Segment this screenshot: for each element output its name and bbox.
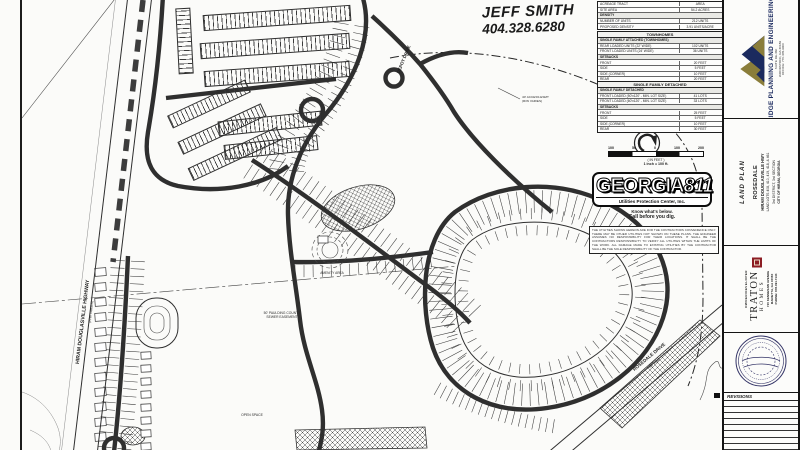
ridge-logo-icon (736, 29, 766, 89)
project-district: 3rd DISTRICT, 3rd SECTION (772, 160, 776, 204)
map-labels: HIRAM DOUGLASVILLE HIGHWAY (R/W VARIES) … (75, 45, 666, 417)
owner-box: OWNER/DEVELOPER TRATON HOMES 720 KENNESA… (724, 245, 798, 333)
highway-median (113, 0, 143, 262)
table-row: FRONT LOADED (50'x120' - MIN. LOT SIZE)4… (598, 93, 722, 99)
engineer-seal-icon (724, 332, 798, 390)
seal-box (724, 332, 798, 393)
georgia811-tagline2: Call before you dig. (592, 214, 712, 220)
scale-tick: 0 (654, 146, 656, 150)
contact-phone: 404.328.6280 (482, 19, 575, 38)
project-name: ROSEDALE (753, 164, 759, 198)
revisions-rows (724, 401, 798, 450)
title-block: RIDGE PLANNING AND ENGINEERING SUITE DE-… (722, 0, 800, 450)
single-family-table: SINGLE FAMILY DETACHED SINGLE FAMILY DET… (597, 81, 723, 133)
depot-drive-road (372, 16, 552, 212)
table-row: FRONT LOADED (60'x120' - MIN. LOT SIZE)3… (598, 98, 722, 104)
access-esmt-label-2: (R/W VARIES) (522, 99, 542, 103)
stormwater-pond (315, 176, 400, 239)
amenity-oval (136, 298, 178, 348)
table-row: REAR30 FEET (598, 126, 722, 132)
cul-de-sac (301, 99, 323, 121)
contact-block: JEFF SMITH 404.328.6280 (481, 1, 575, 37)
existing-pavement-south (295, 427, 427, 450)
townhome-loop-road (147, 0, 288, 189)
revision-row (724, 444, 798, 450)
scale-tick: 100 (674, 146, 680, 150)
revisions-title: REVISIONS (724, 392, 798, 401)
georgia811-subtitle: Utilities Protection Center, Inc. (596, 197, 708, 204)
plan-sheet: HIRAM DOUGLASVILLE HIGHWAY (R/W VARIES) … (0, 0, 800, 450)
table-row: PROPOSED DENSITY3.91 UNITS/ACRE (598, 23, 722, 29)
highway-sub-label: (R/W VARIES) (88, 301, 95, 323)
georgia811-name: GEORGIA (596, 175, 683, 197)
site-data-table: ACREAGE TRACTAREASITE AREA54.2 ACRESDENS… (597, 1, 723, 30)
traton-logo-icon (752, 257, 762, 267)
utilities-disclaimer: THE UTILITIES SHOWN HEREON ARE FOR THE C… (589, 226, 719, 254)
project-road: HIRAM DOUGLASVILLE HWY (760, 153, 765, 210)
owner-name-1: TRATON (750, 270, 759, 320)
scale-bar-graphic (608, 151, 704, 157)
project-city: CITY OF HIRAM, GEORGIA (777, 160, 781, 203)
sewer-easement-label-2: SEWER EASEMENT (266, 315, 297, 319)
scale-tick: 50 (632, 146, 636, 150)
firm-address-3: OFFICE: 770.345.9000 (782, 43, 786, 75)
owner-label: OWNER/DEVELOPER (744, 270, 748, 308)
georgia811-block: GEORGIA811 Utilities Protection Center, … (592, 172, 712, 220)
scale-bar: 100 50 0 100 200 ( IN FEET ) 1 inch = 10… (608, 146, 704, 166)
lot-lines (98, 22, 665, 450)
diagonal-street (252, 160, 470, 323)
revisions-box: REVISIONS (724, 392, 798, 450)
sheet-info-box: LAND PLAN ROSEDALE HIRAM DOUGLASVILLE HW… (724, 118, 798, 246)
owner-address-3: PHONE: 678.391.7134 (775, 273, 779, 304)
scale-ratio: 1 inch = 100 ft. (608, 162, 704, 166)
amenity-label: AMENITY AREA (320, 271, 344, 275)
loop-road (425, 187, 668, 410)
scanned-land-plan-sheet: { "contact": { "name": "JEFF SMITH", "ph… (0, 0, 800, 450)
sheet-type: LAND PLAN (740, 160, 746, 204)
georgia811-logo: GEORGIA811 Utilities Protection Center, … (592, 172, 712, 207)
revision-marker (714, 393, 720, 398)
scale-tick: 100 (608, 146, 614, 150)
firm-box: RIDGE PLANNING AND ENGINEERING SUITE DE-… (724, 0, 798, 119)
project-land-lots: LAND LOTS 408, 410, 419, 418, & 461 (766, 152, 770, 211)
left-street (114, 256, 128, 450)
open-space-label: OPEN SPACE (241, 413, 264, 417)
georgia811-number: 811 (683, 175, 712, 197)
depot-branch (420, 52, 468, 64)
scale-tick: 200 (698, 146, 704, 150)
townhomes-table: TOWNHOMES SINGLE FAMILY ATTACHED (TOWNHO… (597, 31, 723, 83)
